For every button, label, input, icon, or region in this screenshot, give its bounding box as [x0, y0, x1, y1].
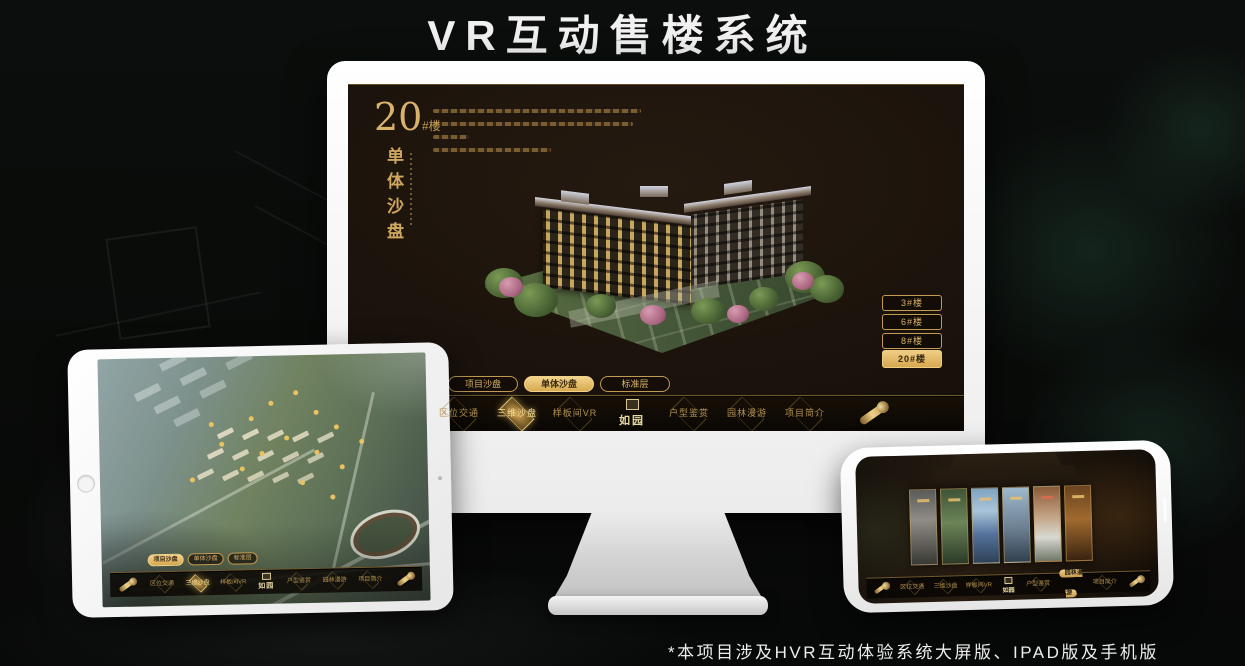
tab-single-sandbox[interactable]: 单体沙盘: [188, 553, 224, 566]
tab-project-sandbox[interactable]: 项目沙盘: [148, 554, 184, 567]
roof-cap: [724, 180, 752, 195]
monitor-stand-neck: [552, 511, 764, 601]
building-3d-render: [481, 175, 843, 361]
tree: [586, 294, 616, 318]
scroll-icon[interactable]: [396, 572, 413, 587]
scene-gallery: [909, 485, 1093, 566]
building-heading-title: 单体沙盘: [381, 147, 406, 247]
nav-item-garden-roam[interactable]: 园林漫游: [718, 396, 776, 431]
monitor-stand-base: [548, 596, 768, 615]
text-line: [433, 135, 469, 139]
brand-logo: 如园: [604, 399, 660, 428]
building-description: [433, 109, 645, 161]
scene-panel-interior[interactable]: [1064, 485, 1093, 562]
heading-caption-line: [410, 153, 412, 225]
tab-standard-floor[interactable]: 标准层: [600, 376, 670, 392]
tree: [810, 275, 844, 303]
nav-item-location[interactable]: 区位交通: [430, 396, 488, 431]
seal-icon: [626, 399, 639, 410]
nav-item-showroom-vr[interactable]: 样板间VR: [962, 575, 996, 596]
nav-item-garden-roam[interactable]: 园林漫游: [1054, 563, 1088, 604]
text-line: [433, 122, 633, 126]
nav-item-location[interactable]: 区位交通: [144, 572, 180, 597]
home-button[interactable]: [77, 474, 95, 492]
nav-item-showroom-vr[interactable]: 样板间VR: [215, 570, 251, 595]
side-button: [1163, 498, 1167, 523]
nav-item-project-intro[interactable]: 项目简介: [352, 567, 388, 592]
brand-logo: 如园: [251, 573, 281, 592]
nav-item-location[interactable]: 区位交通: [895, 577, 929, 598]
floor-button-3[interactable]: 3#楼: [882, 295, 942, 311]
tab-project-sandbox[interactable]: 项目沙盘: [448, 376, 518, 392]
page-title: VR互动售楼系统: [0, 2, 1245, 63]
text-line: [433, 148, 551, 152]
scene-panel-gate[interactable]: [909, 489, 938, 566]
building-heading-number: 20: [374, 95, 422, 139]
scene-panel-building[interactable]: [1002, 486, 1031, 563]
scroll-icon[interactable]: [858, 402, 887, 426]
sandbox-subtabs: 项目沙盘 单体沙盘 标准层: [448, 376, 670, 392]
map-sign-frame: [105, 226, 210, 340]
seal-icon: [261, 573, 270, 580]
nav-item-project-intro[interactable]: 项目简介: [776, 396, 834, 431]
nav-item-project-intro[interactable]: 项目简介: [1088, 572, 1122, 593]
tree: [691, 298, 725, 324]
floor-button-6[interactable]: 6#楼: [882, 314, 942, 330]
phone-screen: 区位交通 三维沙盘 样板间VR 如园 户型鉴赏 园林漫游 项目简介: [855, 449, 1159, 604]
scene-panel-garden[interactable]: [940, 488, 969, 565]
tablet-screen: 项目沙盘 单体沙盘 标准层 区位交通 三维沙盘 样板间VR 如园 户型鉴赏 园林…: [97, 353, 430, 608]
brand-logo: 如园: [995, 576, 1021, 594]
nav-item-floorplans[interactable]: 户型鉴赏: [281, 569, 317, 594]
scene-panel-autumn[interactable]: [1033, 486, 1062, 563]
nav-item-garden-roam[interactable]: 园林漫游: [317, 568, 353, 593]
poster-canvas: VR互动售楼系统 20 #楼 单体沙盘: [0, 0, 1245, 666]
desktop-bottom-nav: 区位交通 三维沙盘 样板间VR 如园 户型鉴赏 园林漫游 项目简介: [348, 395, 964, 431]
nav-item-floorplans[interactable]: 户型鉴赏: [660, 396, 718, 431]
nav-item-showroom-vr[interactable]: 样板间VR: [546, 396, 604, 431]
nav-item-3d-sandbox[interactable]: 三维沙盘: [180, 571, 216, 596]
tablet-subtabs: 项目沙盘 单体沙盘 标准层: [148, 552, 258, 566]
roof-cap: [640, 186, 668, 197]
scene-panel-tower[interactable]: [971, 487, 1000, 564]
tab-single-sandbox[interactable]: 单体沙盘: [524, 376, 594, 392]
text-line: [433, 109, 641, 113]
camera-dot: [438, 476, 442, 480]
scroll-icon[interactable]: [1129, 576, 1143, 588]
tablet-device: 项目沙盘 单体沙盘 标准层 区位交通 三维沙盘 样板间VR 如园 户型鉴赏 园林…: [67, 342, 454, 618]
scroll-icon[interactable]: [118, 577, 135, 592]
nav-item-floorplans[interactable]: 户型鉴赏: [1021, 574, 1055, 595]
phone-device: 区位交通 三维沙盘 样板间VR 如园 户型鉴赏 园林漫游 项目简介: [840, 440, 1174, 614]
seal-icon: [1004, 576, 1012, 583]
nav-item-3d-sandbox[interactable]: 三维沙盘: [488, 396, 546, 431]
tree: [749, 287, 779, 311]
floor-button-8[interactable]: 8#楼: [882, 333, 942, 349]
flower-tree: [792, 272, 814, 290]
footnote: *本项目涉及HVR互动体验系统大屏版、IPAD版及手机版: [668, 638, 1159, 663]
nav-item-3d-sandbox[interactable]: 三维沙盘: [929, 576, 963, 597]
tab-standard-floor[interactable]: 标准层: [228, 552, 258, 565]
floor-button-20[interactable]: 20#楼: [882, 350, 942, 368]
scroll-icon[interactable]: [874, 582, 888, 594]
